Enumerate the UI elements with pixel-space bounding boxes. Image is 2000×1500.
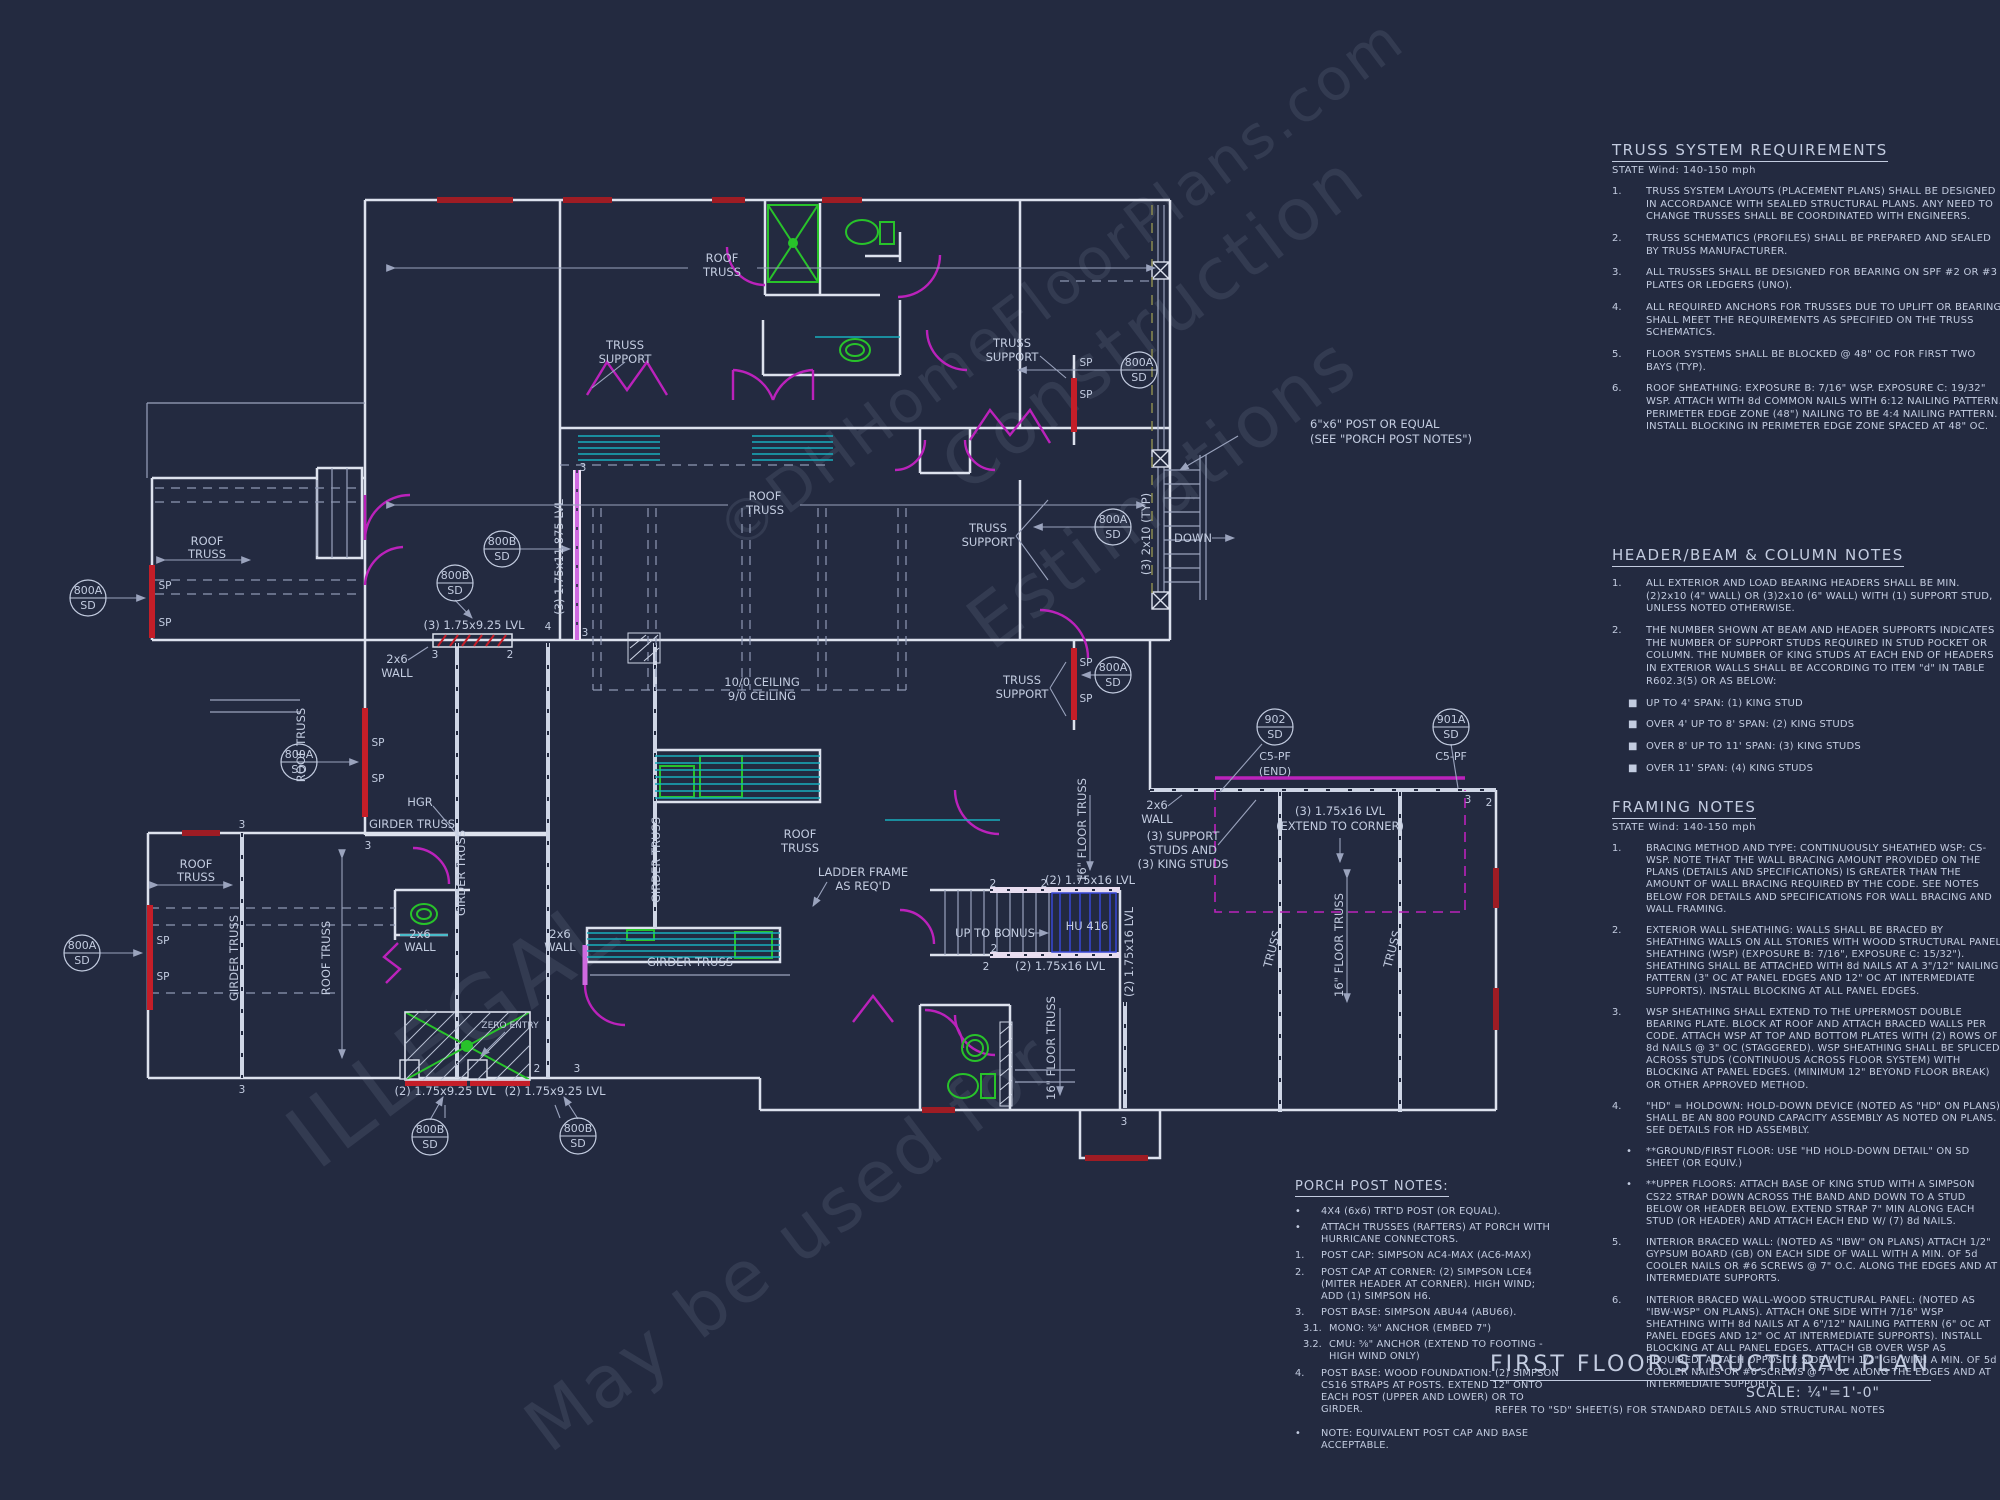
svg-text:800A: 800A [1099, 661, 1128, 674]
note-item: 1.ALL EXTERIOR AND LOAD BEARING HEADERS … [1612, 578, 2000, 616]
note-item: 3.WSP SHEATHING SHALL EXTEND TO THE UPPE… [1612, 1007, 2000, 1092]
lvl-label: (2) 1.75x16 LVL [1045, 873, 1136, 887]
truss-support-label: SUPPORT [986, 350, 1040, 364]
lvl-label: (2) 1.75x16 LVL [1122, 906, 1136, 997]
svg-text:SD: SD [1267, 728, 1282, 741]
support-studs-label: STUDS AND [1149, 843, 1217, 857]
svg-text:SD: SD [494, 550, 509, 563]
svg-text:C5-PF: C5-PF [1435, 750, 1467, 763]
up-to-bonus-label: UP TO BONUS [955, 926, 1035, 940]
roof-truss-label: TRUSS [702, 265, 741, 279]
section-title: FRAMING NOTES [1612, 798, 1756, 819]
svg-text:3: 3 [365, 840, 372, 852]
callout-800b: 800BSD [412, 1119, 448, 1155]
section-subtitle: STATE Wind: 140-150 mph [1612, 165, 2000, 176]
detail-callouts: 800ASD 800ASD 800BSD 800BSD 800ASD 800AS… [64, 352, 1469, 1155]
plan-reference-note: REFER TO "SD" SHEET(S) FOR STANDARD DETA… [1490, 1405, 1890, 1416]
svg-text:3: 3 [580, 462, 587, 474]
svg-text:SP: SP [372, 773, 385, 785]
note-bullet: •**GROUND/FIRST FLOOR: USE "HD HOLD-DOWN… [1612, 1146, 2000, 1170]
truss-support-label: TRUSS [968, 521, 1007, 535]
svg-text:SP: SP [1080, 693, 1093, 705]
note-bullet: ■OVER 8' UP TO 11' SPAN: (3) KING STUDS [1612, 741, 2000, 754]
wall-label: 2x6 [549, 927, 570, 941]
truss-support-label: SUPPORT [599, 352, 653, 366]
svg-text:SD: SD [74, 954, 89, 967]
post-label: (3) 2x10 (TYP) [1139, 493, 1153, 575]
callout-800b: 800BSD [484, 531, 520, 567]
svg-text:2: 2 [1486, 797, 1493, 809]
svg-text:3: 3 [1465, 794, 1472, 806]
roof-truss-label: ROOF [706, 251, 739, 265]
svg-text:800A: 800A [1099, 513, 1128, 526]
note-item: 2.TRUSS SCHEMATICS (PROFILES) SHALL BE P… [1612, 233, 2000, 258]
note-item: 2.POST CAP AT CORNER: (2) SIMPSON LCE4 (… [1295, 1267, 1560, 1303]
girder-truss-label: GIRDER TRUSS [454, 830, 468, 916]
roof-truss-label: ROOF TRUSS [319, 921, 333, 995]
lvl-label: (2) 1.75x16 LVL [1015, 959, 1106, 973]
callout-800a: 800ASD [64, 935, 100, 971]
roof-truss-label: TRUSS [176, 870, 215, 884]
svg-text:3: 3 [1121, 1116, 1128, 1128]
note-item: 5.FLOOR SYSTEMS SHALL BE BLOCKED @ 48" O… [1612, 349, 2000, 374]
ceiling-label: 9/0 CEILING [728, 689, 796, 703]
note-item: 1.BRACING METHOD AND TYPE: CONTINUOUSLY … [1612, 843, 2000, 916]
note-item: 1.POST CAP: SIMPSON AC4-MAX (AC6-MAX) [1295, 1250, 1560, 1262]
wall-label: WALL [1141, 812, 1173, 826]
section-title: HEADER/BEAM & COLUMN NOTES [1612, 546, 1904, 567]
title-block: FIRST FLOOR STRUCTURAL PLAN SCALE: ¼"=1'… [1490, 1352, 1890, 1416]
section-subtitle: STATE Wind: 140-150 mph [1612, 822, 2000, 833]
girder-truss-label: GIRDER TRUSS [649, 817, 663, 903]
truss-support-label: TRUSS [1002, 673, 1041, 687]
svg-text:SP: SP [1080, 357, 1093, 369]
sp-braced-wall [150, 378, 1074, 1083]
svg-text:2: 2 [991, 943, 998, 955]
ladder-frame-label: AS REQ'D [835, 879, 890, 893]
lvl-label: (2) 1.75x9.25 LVL [504, 1084, 606, 1098]
svg-text:3: 3 [582, 627, 589, 639]
svg-text:2: 2 [990, 878, 997, 890]
svg-text:3: 3 [239, 1084, 246, 1096]
svg-text:4: 4 [545, 621, 552, 633]
callout-901a: 901ASD C5-PF [1433, 709, 1469, 763]
lvl-label: (3) 1.75x9.25 LVL [423, 618, 525, 632]
svg-text:901A: 901A [1437, 713, 1466, 726]
note-item: 1.TRUSS SYSTEM LAYOUTS (PLACEMENT PLANS)… [1612, 186, 2000, 224]
svg-text:2: 2 [507, 649, 514, 661]
truss-system-requirements: TRUSS SYSTEM REQUIREMENTS STATE Wind: 14… [1612, 140, 2000, 443]
note-item: 2.THE NUMBER SHOWN AT BEAM AND HEADER SU… [1612, 625, 2000, 688]
floor-truss-label: 16" FLOOR TRUSS [1044, 996, 1058, 1100]
svg-text:SD: SD [570, 1137, 585, 1150]
plan-title: FIRST FLOOR STRUCTURAL PLAN [1490, 1352, 1931, 1381]
lvl-label: (2) 1.75x9.25 LVL [394, 1084, 496, 1098]
wall-outline [148, 200, 1496, 1158]
truss-support-label: SUPPORT [996, 687, 1050, 701]
truss-support-label: TRUSS [992, 336, 1031, 350]
svg-text:SD: SD [447, 584, 462, 597]
svg-text:800B: 800B [416, 1123, 445, 1136]
callout-800a: 800ASD [1121, 352, 1157, 388]
post-note-label: 6"x6" POST OR EQUAL [1310, 417, 1440, 431]
svg-text:3: 3 [574, 1063, 581, 1075]
callout-800b: 800BSD [437, 565, 473, 601]
wall-label: WALL [381, 666, 413, 680]
ceiling-label: 10/0 CEILING [724, 675, 799, 689]
svg-text:SP: SP [159, 580, 172, 592]
note-bullet: •**UPPER FLOORS: ATTACH BASE OF KING STU… [1612, 1179, 2000, 1228]
callout-800a: 800ASD [70, 580, 106, 616]
svg-text:SD: SD [1443, 728, 1458, 741]
girder-truss-label: GIRDER TRUSS [647, 955, 733, 969]
note-item: •NOTE: EQUIVALENT POST CAP AND BASE ACCE… [1295, 1428, 1560, 1452]
svg-text:3: 3 [239, 819, 246, 831]
note-bullet: ■OVER 11' SPAN: (4) KING STUDS [1612, 763, 2000, 776]
svg-text:SP: SP [157, 971, 170, 983]
wall-label: WALL [544, 940, 576, 954]
svg-text:800A: 800A [74, 584, 103, 597]
callout-902: 902SD C5-PF(END) [1257, 709, 1293, 778]
svg-text:800A: 800A [1125, 356, 1154, 369]
support-studs-label: (3) SUPPORT [1147, 829, 1221, 843]
note-bullet: ■OVER 4' UP TO 8' SPAN: (2) KING STUDS [1612, 719, 2000, 732]
hanger-label: HU 416 [1066, 919, 1109, 933]
callout-800b: 800BSD [560, 1118, 596, 1154]
floor-truss-label: 16" FLOOR TRUSS [1075, 778, 1089, 882]
girder-truss-label: GIRDER TRUSS [227, 915, 241, 1001]
svg-text:SD: SD [422, 1138, 437, 1151]
header-beam-column-notes: HEADER/BEAM & COLUMN NOTES 1.ALL EXTERIO… [1612, 545, 2000, 784]
svg-text:800B: 800B [441, 569, 470, 582]
note-item: •4X4 (6x6) TRT'D POST (OR EQUAL). [1295, 1206, 1560, 1218]
roof-truss-label: ROOF [784, 827, 817, 841]
note-item: 5.INTERIOR BRACED WALL: (NOTED AS "IBW" … [1612, 1237, 2000, 1286]
note-bullet: ■UP TO 4' SPAN: (1) KING STUD [1612, 698, 2000, 711]
wall-label: WALL [404, 940, 436, 954]
svg-text:800B: 800B [564, 1122, 593, 1135]
lvl-label: (EXTEND TO CORNER) [1276, 819, 1404, 833]
hanger-label: HGR [407, 795, 433, 809]
wall-label: 2x6 [386, 652, 407, 666]
roof-truss-label: TRUSS [745, 503, 784, 517]
svg-text:SD: SD [1105, 528, 1120, 541]
section-title: TRUSS SYSTEM REQUIREMENTS [1612, 141, 1888, 162]
post-note-label: (SEE "PORCH POST NOTES") [1310, 432, 1472, 446]
svg-text:3: 3 [432, 649, 439, 661]
lvl-label: (3) 1.75x16 LVL [1295, 804, 1386, 818]
truss-support-label: SUPPORT [962, 535, 1016, 549]
svg-text:(END): (END) [1259, 765, 1291, 778]
svg-text:800B: 800B [488, 535, 517, 548]
note-item: 3.1.MONO: ⅝" ANCHOR (EMBED 7") [1295, 1323, 1560, 1335]
plan-scale: SCALE: ¼"=1'-0" [1490, 1385, 1890, 1401]
roof-truss-label: TRUSS [780, 841, 819, 855]
note-item: 4.ALL REQUIRED ANCHORS FOR TRUSSES DUE T… [1612, 302, 2000, 340]
girder-truss-label: GIRDER TRUSS [369, 817, 455, 831]
svg-text:2: 2 [983, 961, 990, 973]
note-item: 4."HD" = HOLDOWN: HOLD-DOWN DEVICE (NOTE… [1612, 1101, 2000, 1137]
header-segment [182, 200, 1496, 1158]
roof-truss-label: ROOF [749, 489, 782, 503]
callout-800a: 800ASD [1095, 509, 1131, 545]
support-studs-label: (3) KING STUDS [1138, 857, 1229, 871]
svg-text:SD: SD [80, 599, 95, 612]
wall-label: 2x6 [1146, 798, 1167, 812]
svg-text:SD: SD [1131, 371, 1146, 384]
zero-entry-label: ZERO ENTRY [481, 1021, 539, 1031]
floor-truss-label: 16" FLOOR TRUSS [1332, 893, 1346, 997]
roof-truss-label: ROOF [191, 534, 224, 548]
svg-text:SP: SP [159, 617, 172, 629]
section-title: PORCH POST NOTES: [1295, 1179, 1449, 1197]
callout-800a: 800ASD [1095, 657, 1131, 693]
framing-notes: FRAMING NOTES STATE Wind: 140-150 mph 1.… [1612, 798, 2000, 1401]
svg-text:2: 2 [1041, 878, 1048, 890]
svg-text:C5-PF: C5-PF [1259, 750, 1291, 763]
svg-text:SP: SP [1080, 657, 1093, 669]
lvl-label: (3) 1.75x11.875 LVL [552, 499, 566, 615]
roof-truss-label: TRUSS [187, 547, 226, 561]
svg-text:SD: SD [1105, 676, 1120, 689]
wall-label: 2x6 [409, 927, 430, 941]
note-item: •ATTACH TRUSSES (RAFTERS) AT PORCH WITH … [1295, 1222, 1560, 1246]
svg-text:SP: SP [1080, 389, 1093, 401]
truss-support-label: TRUSS [605, 338, 644, 352]
note-item: 3.ALL TRUSSES SHALL BE DESIGNED FOR BEAR… [1612, 267, 2000, 292]
roof-truss-label: ROOF TRUSS [294, 708, 308, 782]
svg-text:SP: SP [157, 935, 170, 947]
ladder-frame-label: LADDER FRAME [818, 865, 908, 879]
note-item: 6.ROOF SHEATHING: EXPOSURE B: 7/16" WSP.… [1612, 383, 2000, 434]
svg-text:2: 2 [534, 1063, 541, 1075]
svg-text:800A: 800A [68, 939, 97, 952]
svg-text:902: 902 [1265, 713, 1286, 726]
svg-text:SP: SP [372, 737, 385, 749]
down-label: DOWN [1174, 531, 1212, 545]
note-item: 3.POST BASE: SIMPSON ABU44 (ABU66). [1295, 1307, 1560, 1319]
roof-truss-label: ROOF [180, 857, 213, 871]
structural-plan-sheet: ©DHHomeFloorPlans.com Construction Estim… [0, 0, 2000, 1500]
note-item: 2.EXTERIOR WALL SHEATHING: WALLS SHALL B… [1612, 925, 2000, 998]
